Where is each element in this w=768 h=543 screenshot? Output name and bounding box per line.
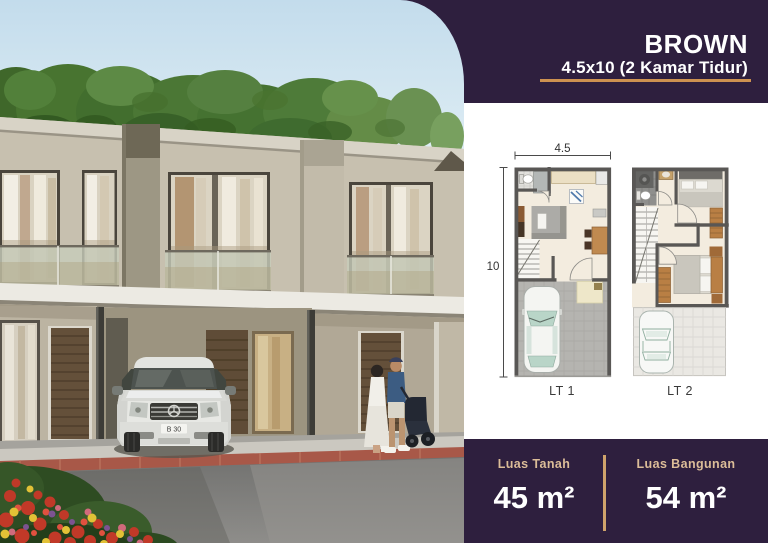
svg-text:B 30: B 30 [167, 427, 182, 434]
svg-text:4.5: 4.5 [555, 143, 571, 155]
svg-text:10: 10 [487, 261, 500, 273]
